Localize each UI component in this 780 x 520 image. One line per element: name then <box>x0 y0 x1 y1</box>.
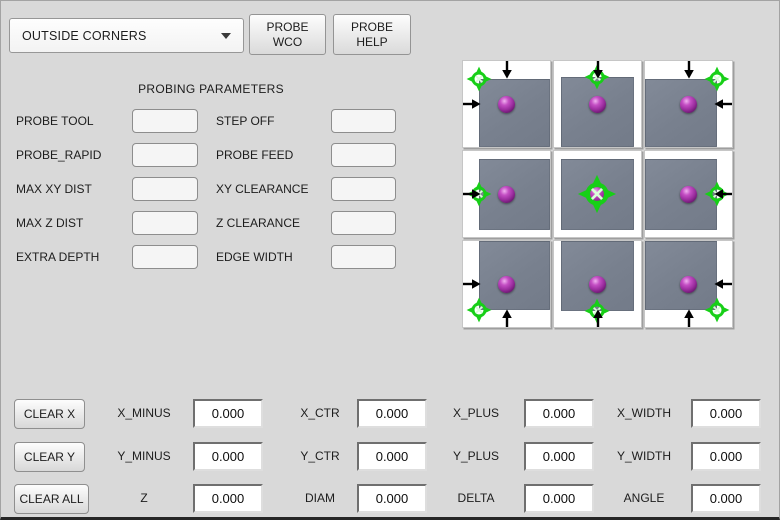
probe-tool-input[interactable] <box>132 109 198 133</box>
arrow-up-icon <box>683 309 695 328</box>
clear-all-button[interactable]: CLEAR ALL <box>14 484 89 514</box>
arrow-right-icon <box>462 98 481 110</box>
clear-x-button[interactable]: CLEAR X <box>14 399 85 429</box>
probe-ball-icon <box>498 186 515 203</box>
chevron-down-icon <box>221 33 231 39</box>
probe-tile-bottom-left-corner[interactable] <box>462 240 551 328</box>
arrow-right-icon <box>462 188 481 200</box>
x-width-value: 0.000 <box>691 399 761 428</box>
y-minus-value: 0.000 <box>193 442 263 471</box>
y-plus-label: Y_PLUS <box>433 442 519 471</box>
y-ctr-value: 0.000 <box>357 442 427 471</box>
probe-help-button-line2: HELP <box>356 35 387 49</box>
probe-wco-button-line2: WCO <box>273 35 302 49</box>
target-crosshair-icon <box>466 297 492 323</box>
probe-position-grid <box>462 60 733 328</box>
target-crosshair-icon <box>466 66 492 92</box>
arrow-up-icon <box>592 309 604 328</box>
extra-depth-input[interactable] <box>132 245 198 269</box>
probe-tile-right-edge[interactable] <box>644 150 733 238</box>
arrow-left-icon <box>714 98 733 110</box>
clear-y-button[interactable]: CLEAR Y <box>14 442 85 472</box>
step-off-label: STEP OFF <box>216 109 274 133</box>
x-minus-value: 0.000 <box>193 399 263 428</box>
probe-feed-label: PROBE FEED <box>216 143 293 167</box>
max-xy-dist-input[interactable] <box>132 177 198 201</box>
x-minus-label: X_MINUS <box>101 399 187 428</box>
x-width-label: X_WIDTH <box>601 399 687 428</box>
probe-mode-select[interactable]: OUTSIDE CORNERS <box>9 18 244 53</box>
y-plus-value: 0.000 <box>524 442 594 471</box>
x-plus-value: 0.000 <box>524 399 594 428</box>
x-ctr-label: X_CTR <box>277 399 363 428</box>
param-row: MAX XY DIST XY CLEARANCE <box>1 177 441 201</box>
arrow-left-icon <box>714 278 733 290</box>
probe-help-button[interactable]: PROBE HELP <box>333 14 411 55</box>
probe-rapid-label: PROBE_RAPID <box>16 143 101 167</box>
probe-tile-bottom-edge[interactable] <box>553 240 642 328</box>
diam-label: DIAM <box>277 484 363 513</box>
z-clearance-input[interactable] <box>331 211 396 235</box>
param-row: EXTRA DEPTH EDGE WIDTH <box>1 245 441 269</box>
probe-ball-icon <box>589 276 606 293</box>
z-value: 0.000 <box>193 484 263 513</box>
delta-label: DELTA <box>433 484 519 513</box>
arrow-down-icon <box>501 60 513 79</box>
probe-ball-icon <box>589 96 606 113</box>
z-clearance-label: Z CLEARANCE <box>216 211 300 235</box>
target-crosshair-icon <box>704 66 730 92</box>
probe-tile-bottom-right-corner[interactable] <box>644 240 733 328</box>
y-width-label: Y_WIDTH <box>601 442 687 471</box>
max-z-dist-input[interactable] <box>132 211 198 235</box>
probe-wco-button[interactable]: PROBE WCO <box>249 14 326 55</box>
param-row: PROBE_RAPID PROBE FEED <box>1 143 441 167</box>
param-row: PROBE TOOL STEP OFF <box>1 109 441 133</box>
y-ctr-label: Y_CTR <box>277 442 363 471</box>
arrow-left-icon <box>714 188 733 200</box>
probe-ball-icon <box>498 96 515 113</box>
edge-width-label: EDGE WIDTH <box>216 245 293 269</box>
xy-clearance-label: XY CLEARANCE <box>216 177 308 201</box>
xy-clearance-input[interactable] <box>331 177 396 201</box>
probe-tool-label: PROBE TOOL <box>16 109 94 133</box>
y-minus-label: Y_MINUS <box>101 442 187 471</box>
angle-value: 0.000 <box>691 484 761 513</box>
probe-screen: OUTSIDE CORNERS PROBE WCO PROBE HELP PRO… <box>0 0 780 520</box>
probe-tile-top-edge[interactable] <box>553 60 642 148</box>
diam-value: 0.000 <box>357 484 427 513</box>
max-z-dist-label: MAX Z DIST <box>16 211 83 235</box>
x-plus-label: X_PLUS <box>433 399 519 428</box>
target-crosshair-icon <box>704 297 730 323</box>
x-ctr-value: 0.000 <box>357 399 427 428</box>
probe-tile-top-left-corner[interactable] <box>462 60 551 148</box>
edge-width-input[interactable] <box>331 245 396 269</box>
probe-feed-input[interactable] <box>331 143 396 167</box>
z-label: Z <box>101 484 187 513</box>
extra-depth-label: EXTRA DEPTH <box>16 245 99 269</box>
arrow-right-icon <box>462 278 481 290</box>
arrow-up-icon <box>501 309 513 328</box>
probe-ball-icon <box>498 276 515 293</box>
arrow-down-icon <box>592 60 604 79</box>
probe-rapid-input[interactable] <box>132 143 198 167</box>
probe-ball-icon <box>680 96 697 113</box>
arrow-down-icon <box>683 60 695 79</box>
target-crosshair-icon <box>577 174 617 214</box>
probe-wco-button-line1: PROBE <box>266 20 308 34</box>
max-xy-dist-label: MAX XY DIST <box>16 177 92 201</box>
probe-mode-selected-value: OUTSIDE CORNERS <box>22 29 147 43</box>
angle-label: ANGLE <box>601 484 687 513</box>
probe-help-button-line1: PROBE <box>351 20 393 34</box>
probe-tile-center[interactable] <box>553 150 642 238</box>
probe-ball-icon <box>680 186 697 203</box>
param-row: MAX Z DIST Z CLEARANCE <box>1 211 441 235</box>
probe-ball-icon <box>680 276 697 293</box>
step-off-input[interactable] <box>331 109 396 133</box>
y-width-value: 0.000 <box>691 442 761 471</box>
probe-tile-left-edge[interactable] <box>462 150 551 238</box>
probing-parameters-title: PROBING PARAMETERS <box>1 82 421 96</box>
probe-tile-top-right-corner[interactable] <box>644 60 733 148</box>
delta-value: 0.000 <box>524 484 594 513</box>
